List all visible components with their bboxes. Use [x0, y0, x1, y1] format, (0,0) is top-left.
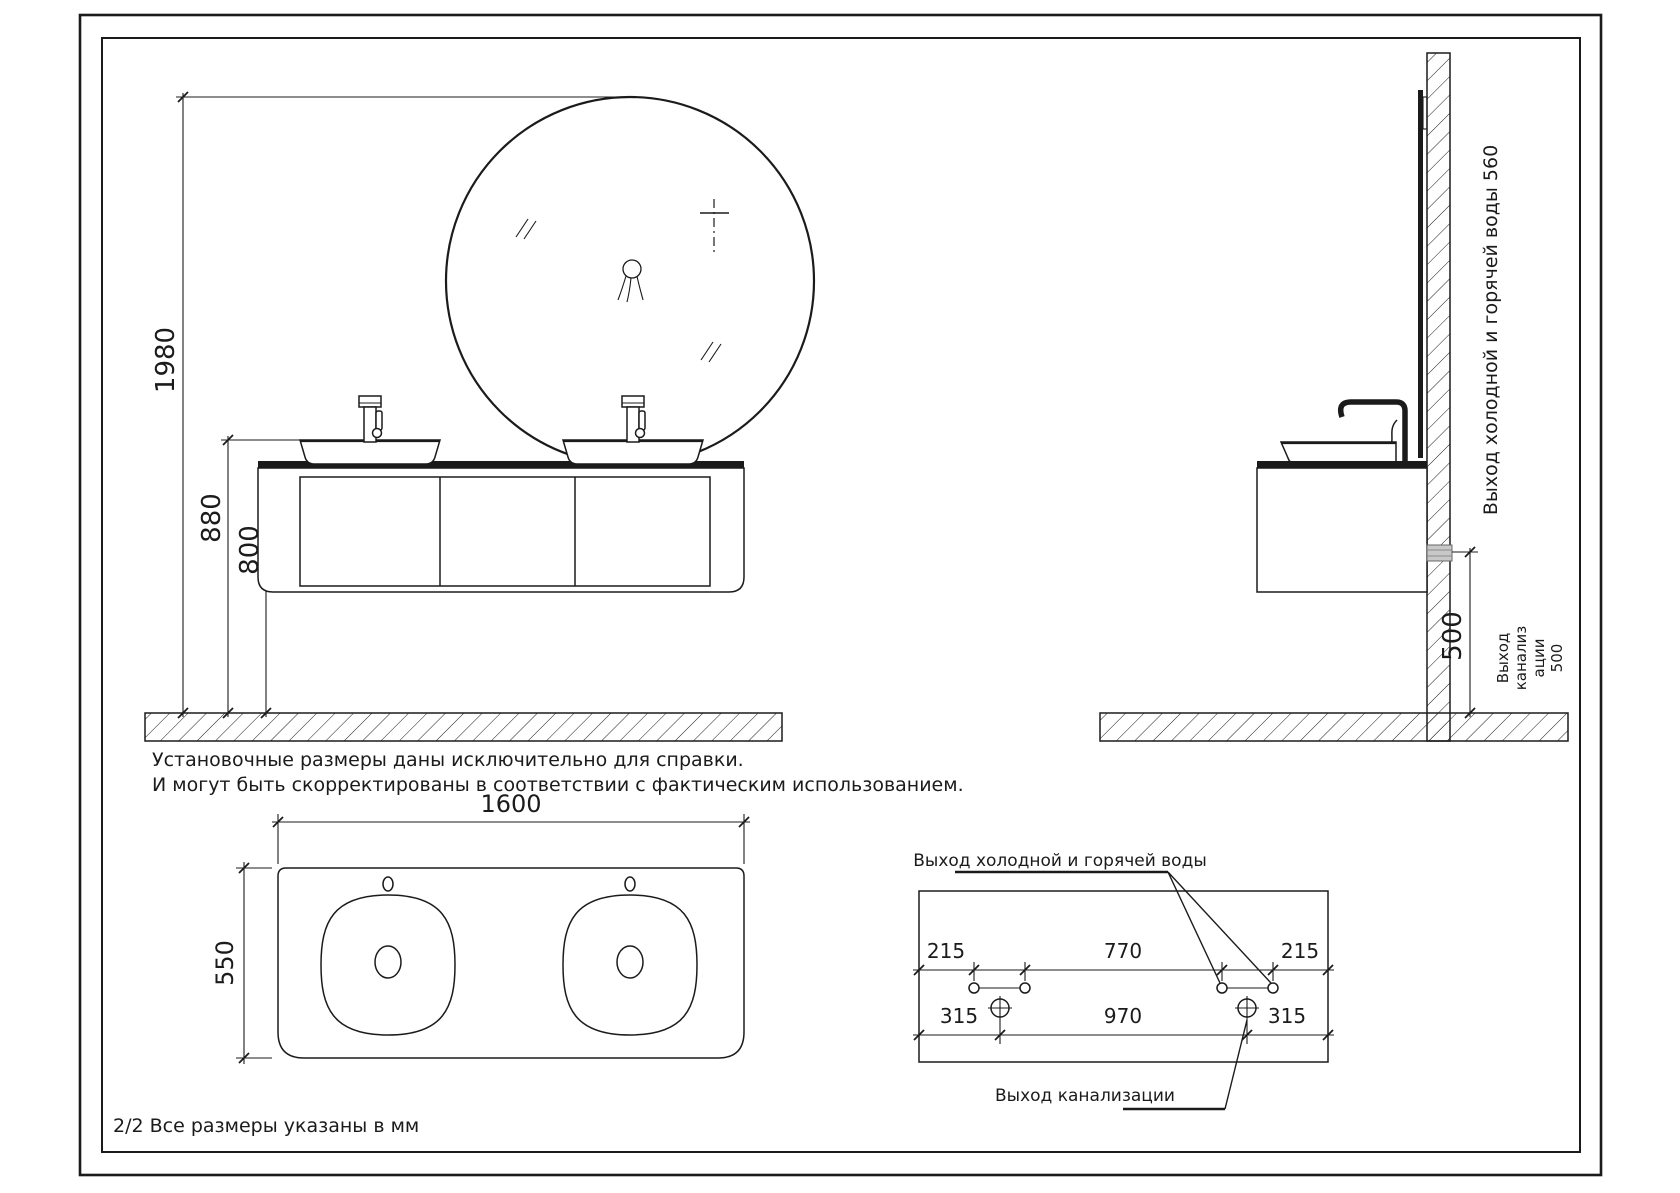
- label-line: канализ: [1512, 626, 1530, 691]
- dim-bottom-center: 970: [1104, 1004, 1142, 1028]
- installation-drawing: 1980 880 800: [0, 0, 1680, 1188]
- dim-sink-height: 880: [197, 493, 227, 543]
- wall-panel-outline: [919, 891, 1328, 1062]
- dim-top-left: 215: [927, 939, 965, 963]
- dim-sewer-height: 500: [1438, 611, 1468, 661]
- reference-note: Установочные размеры даны исключительно …: [152, 749, 964, 796]
- label-line: Выход: [1494, 633, 1512, 684]
- dim-counter-width: 1600: [480, 790, 541, 818]
- vessel-sink-side: [1281, 442, 1396, 464]
- countertop-outline: [278, 868, 744, 1058]
- label-sewer-outlet-side: Выход канализ ации 500: [1494, 626, 1566, 691]
- label-water-outlet-side: Выход холодной и горячей воды 560: [1480, 145, 1502, 515]
- countertop-top-view: 1600 550: [211, 790, 750, 1064]
- label-line: 500: [1548, 644, 1566, 673]
- vessel-sink-left: [300, 440, 440, 464]
- vessel-sink-right: [563, 440, 703, 464]
- dim-bottom-left: 315: [940, 1004, 978, 1028]
- floor-hatch-left: [145, 713, 782, 741]
- sewage-pipe-stub: [1427, 545, 1452, 561]
- front-elevation-view: 1980 880 800: [145, 92, 814, 741]
- floor-hatch-right: [1100, 713, 1568, 741]
- side-section-view: 500 Выход холодной и горячей воды 560 Вы…: [1100, 53, 1568, 741]
- dim-top-right: 215: [1281, 939, 1319, 963]
- vanity-cabinet-front: [258, 468, 744, 592]
- water-outlet: [969, 983, 979, 993]
- dim-top-center: 770: [1104, 939, 1142, 963]
- label-sewer-outlet: Выход канализации: [995, 1086, 1175, 1106]
- label-water-outlets: Выход холодной и горячей воды: [913, 851, 1207, 871]
- water-outlet: [1020, 983, 1030, 993]
- drawing-sheet: 1980 880 800: [0, 0, 1680, 1188]
- note-line-2: И могут быть скорректированы в соответст…: [152, 774, 964, 796]
- note-line-1: Установочные размеры даны исключительно …: [152, 749, 744, 771]
- dim-bottom-right: 315: [1268, 1004, 1306, 1028]
- dim-total-height: 1980: [151, 327, 181, 393]
- mirror-side-edge: [1418, 90, 1423, 458]
- label-line: ации: [1530, 639, 1548, 678]
- countertop-side: [1257, 461, 1427, 468]
- dim-counter-depth: 550: [211, 940, 239, 986]
- faucet-left: [359, 396, 382, 442]
- water-outlet: [1217, 983, 1227, 993]
- water-outlet: [1268, 983, 1278, 993]
- wall-outlet-layout: Выход холодной и горячей воды 215 770 21…: [913, 851, 1334, 1109]
- vanity-cabinet-side: [1257, 468, 1427, 592]
- sheet-footer-note: 2/2 Все размеры указаны в мм: [113, 1115, 419, 1137]
